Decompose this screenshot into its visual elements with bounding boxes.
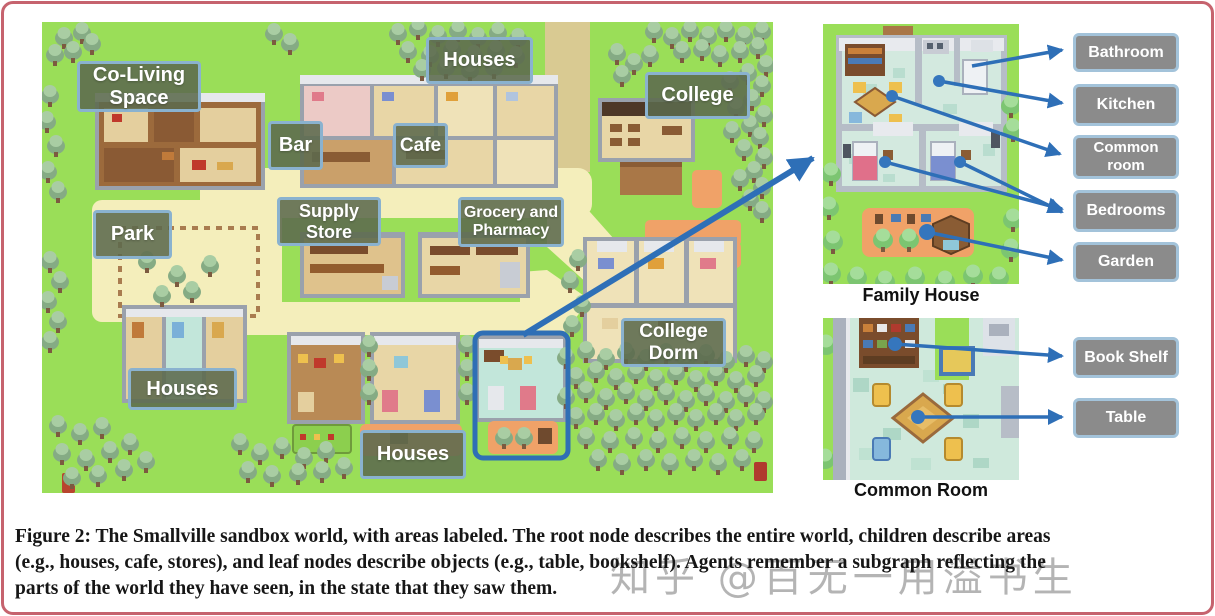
caption-line-2: (e.g., houses, cafe, stores), and leaf n… [15, 550, 1207, 576]
common-room-inset [823, 318, 1019, 480]
area-label-cafe: Cafe [393, 123, 448, 168]
object-label-text: Kitchen [1097, 96, 1156, 114]
area-label-text: College Dorm [624, 321, 723, 364]
flower-patch-1 [692, 170, 722, 208]
area-label-text: Houses [443, 49, 515, 71]
area-label-college-dorm: College Dorm [621, 318, 726, 367]
caption-line-3: parts of the world they have seen, in th… [15, 576, 1207, 602]
area-label-text: Cafe [400, 135, 441, 156]
object-label-common-room: Common room [1073, 135, 1179, 179]
figure-page: Co-Living Space Houses College Bar Cafe … [0, 0, 1215, 616]
object-label-text: Bedrooms [1086, 202, 1165, 220]
object-label-table: Table [1073, 398, 1179, 438]
area-label-text: Co-Living Space [80, 64, 198, 109]
area-label-bar: Bar [268, 121, 323, 170]
area-label-text: Houses [146, 378, 218, 400]
area-label-college: College [645, 72, 750, 119]
object-label-text: Table [1106, 409, 1147, 427]
object-label-text: Common room [1085, 139, 1167, 175]
object-label-garden: Garden [1073, 242, 1179, 282]
red-bench [754, 462, 767, 481]
family-house-inset [823, 24, 1019, 284]
area-label-supply-store: Supply Store [277, 197, 381, 246]
area-label-co-living-space: Co-Living Space [77, 61, 201, 112]
area-label-houses-west: Houses [128, 368, 237, 410]
object-label-bedrooms: Bedrooms [1073, 190, 1179, 232]
caption-line-1: Figure 2: The Smallville sandbox world, … [15, 524, 1207, 550]
object-label-book-shelf: Book Shelf [1073, 337, 1179, 378]
area-label-text: College [661, 84, 733, 106]
area-label-grocery-and-pharmacy: Grocery and Pharmacy [458, 197, 564, 247]
area-label-text: Supply Store [280, 201, 378, 241]
object-label-text: Garden [1098, 253, 1154, 271]
area-label-text: Houses [377, 443, 449, 465]
family-house-caption: Family House [823, 285, 1019, 306]
area-label-text: Bar [279, 134, 312, 156]
object-label-bathroom: Bathroom [1073, 33, 1179, 72]
area-label-park: Park [93, 210, 172, 259]
figure-caption: Figure 2: The Smallville sandbox world, … [15, 524, 1207, 602]
object-label-text: Book Shelf [1084, 349, 1168, 367]
area-label-houses-north: Houses [426, 37, 533, 84]
common-room-caption: Common Room [823, 480, 1019, 501]
object-label-kitchen: Kitchen [1073, 84, 1179, 126]
building-family-house-highlighted [475, 335, 567, 422]
area-label-text: Grocery and Pharmacy [461, 204, 561, 240]
object-label-text: Bathroom [1088, 44, 1164, 62]
area-label-houses-south: Houses [360, 430, 466, 479]
area-label-text: Park [111, 223, 154, 245]
